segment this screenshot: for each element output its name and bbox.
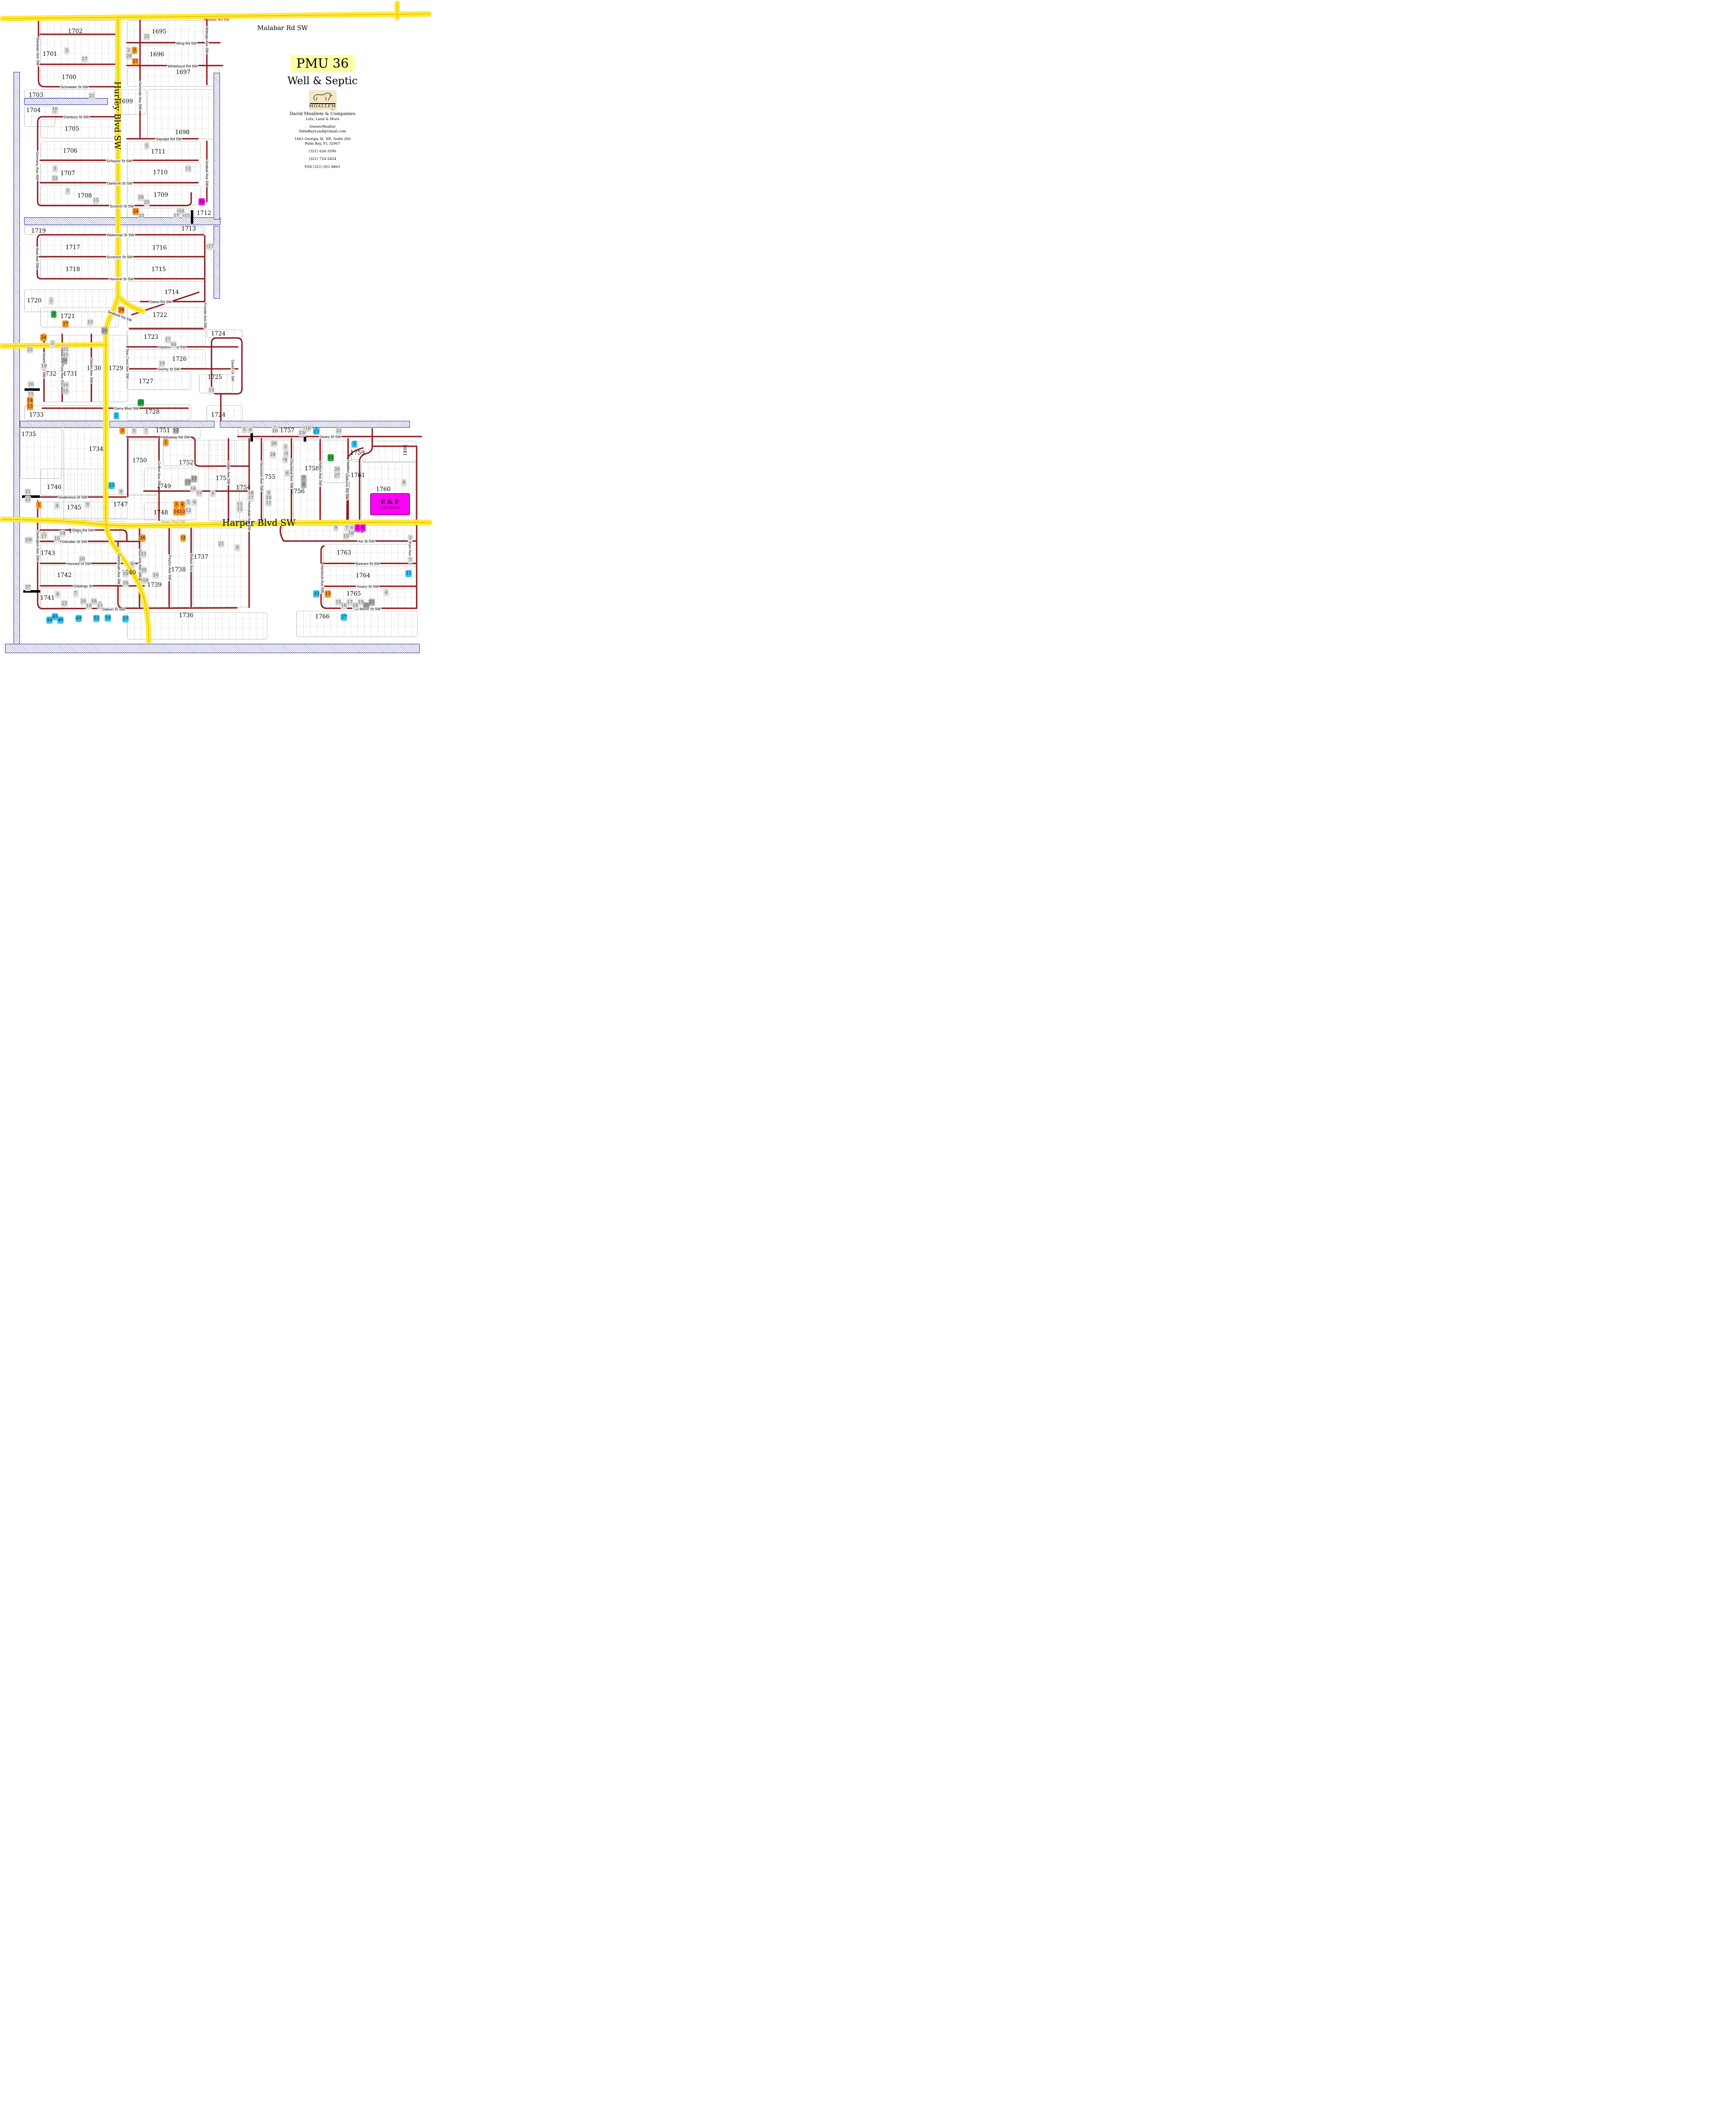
lot-marker-number: 17 (97, 604, 102, 609)
lot-marker: 23 (140, 551, 146, 558)
parcel-ef-acreage: 3.6 Acres (380, 505, 399, 510)
lot-marker-number: 21 (63, 353, 68, 357)
lot-marker: 12 (173, 427, 179, 434)
address-line2: Palm Bay, FL 32907 (271, 141, 374, 146)
lot-marker: 52 (93, 615, 99, 622)
block-number: 1704 (26, 107, 41, 114)
lot-marker-number: 25 (144, 201, 149, 205)
lot-marker-number: 17 (82, 57, 87, 62)
lot-marker: 15 (62, 388, 69, 395)
lot-marker-number: 14 (27, 398, 33, 403)
street-label: Giblin Ave SW (227, 461, 231, 485)
lot-marker: 6 (248, 426, 253, 434)
street-label: Halton Ave SW (319, 461, 322, 487)
block-number: 1730 (87, 365, 101, 372)
lot-marker-number: 23 (138, 401, 143, 405)
lot-marker: P17 (41, 532, 47, 539)
lot-marker: 20 (79, 556, 85, 563)
block-number: 1695 (152, 28, 166, 35)
lot-marker: 3 (408, 535, 413, 542)
lot-marker-number: 5 (353, 442, 356, 447)
lot-marker-number: 20 (79, 557, 85, 562)
block-number: 1711 (151, 148, 165, 155)
block-number: 1712 (197, 210, 211, 217)
lot-marker: 11 (405, 570, 412, 577)
lot-marker-number: 14 (60, 531, 65, 536)
lot-marker: 13 (27, 403, 33, 410)
lot-marker: 54 (104, 615, 111, 622)
lot-marker: 21 (335, 428, 342, 435)
lot-marker-number: 8 (131, 562, 134, 567)
block-number: 1764 (356, 572, 370, 579)
lot-marker-number: 2 (284, 445, 287, 450)
lot-marker: 21 (368, 599, 375, 606)
street-label: Haryestor Ave SW (260, 461, 264, 492)
block-number: 1766 (315, 613, 330, 620)
lot-marker: 1 (36, 502, 42, 509)
lot-marker: 7 (143, 428, 149, 435)
street-label: Gertrude Ave SW (138, 81, 142, 110)
street-label: Scranton St SW (106, 255, 133, 259)
lot-marker-number: 25 (144, 35, 149, 39)
lot-marker: 26 (101, 327, 107, 335)
phone-2: (321) 724-2424 (271, 157, 374, 161)
street-label: Waterway St SW (106, 233, 135, 237)
lot-marker-number: 9 (120, 490, 123, 494)
lot-marker-number: 15 (209, 388, 214, 393)
block-number: 1718 (66, 266, 80, 273)
block-number: 1748 (154, 509, 168, 516)
major-road-label: Malabar Rd SW (257, 24, 308, 32)
lot-marker: 16 (198, 198, 205, 206)
block-number: 1717 (66, 244, 80, 251)
lot-marker: 23 (61, 600, 67, 607)
lot-marker-number: 5 (356, 526, 359, 530)
block-number: 1706 (63, 148, 77, 154)
lot-marker-number: 21 (336, 429, 341, 434)
lot-marker-number: 20 (141, 568, 146, 573)
block-number: 1703 (29, 92, 43, 99)
lot-marker-number: 28 (126, 54, 132, 59)
lot-marker-number: 29 (25, 538, 30, 543)
lot-marker-number: 2 (51, 341, 54, 346)
lot-marker: 13 (324, 591, 331, 598)
lot-marker-number: 10 (153, 573, 158, 578)
street-label: Gideon St SW (101, 608, 125, 612)
lot-marker: 6 (285, 470, 290, 477)
lot-marker-number: 18 (143, 579, 148, 583)
lot-marker: 4 (55, 591, 60, 598)
plat-p-flag: P (31, 539, 33, 541)
block-number: 1725 (208, 374, 222, 381)
fax: FAX (321) 951-8861 (271, 165, 374, 169)
lot-marker-number: 16 (190, 487, 196, 492)
lot-marker-number: 19 (41, 364, 47, 369)
email: PalmBayLand@Gmail.com (271, 129, 374, 133)
lot-marker-number: 8 (302, 483, 305, 487)
lot-marker-number: 3 (175, 503, 178, 507)
lot-marker: 9 (85, 501, 91, 508)
lot-marker-number: 49 (76, 616, 81, 621)
title-block: PMU 36 Well & Septic M DAVID MOALLEM INC… (271, 55, 374, 169)
company-logo: M DAVID MOALLEM INC (309, 90, 337, 110)
plat-map-page: Malabar Rd SWWing Rd SWWhitehurst Rd SWS… (0, 0, 434, 662)
lot-marker-number: 17 (173, 214, 179, 219)
lot-marker-number: 23 (140, 552, 146, 557)
block-number: 1708 (77, 192, 92, 199)
lot-marker: 4 (360, 525, 366, 532)
block-number: 1750 (132, 457, 147, 464)
street-label: Gibbs Rd SW (71, 529, 94, 533)
major-road-label: 1641 (402, 444, 408, 456)
lot-marker-number: 54 (105, 616, 110, 621)
lot-marker: 33 (313, 591, 319, 598)
lot-marker: 6 (192, 499, 198, 506)
lot-marker-number: 6 (249, 428, 252, 432)
lot-marker-number: 46 (58, 618, 63, 623)
lot-marker-number: 12 (185, 508, 191, 513)
lot-marker: 25 (143, 199, 150, 206)
lot-marker: 21 (218, 541, 224, 548)
plat-p-flag: P (54, 111, 56, 114)
block-number: 1734 (89, 446, 103, 453)
street-label: Sea Crest Ave SW (126, 348, 129, 379)
street-label: Bartram St SW (355, 562, 380, 566)
block-number: 1745 (67, 504, 81, 511)
block-number: 1715 (151, 266, 166, 273)
lot-marker-number: 6 (286, 471, 289, 476)
lot-marker-number: 22 (27, 348, 33, 352)
street-label: Gibralter St SW (61, 540, 88, 544)
lot-marker: 9 (235, 544, 240, 552)
block-number: 1722 (153, 312, 167, 319)
lot-marker: P17 (96, 602, 103, 609)
lot-marker: 10P (52, 107, 58, 114)
lot-marker: 15 (343, 533, 349, 540)
street-label: Darlington Ave SW (36, 530, 40, 562)
block-number: 1739 (147, 582, 162, 588)
lot-marker: P3 (181, 535, 186, 542)
block-number: 1713 (181, 225, 196, 232)
lot-marker-number: 16 (170, 343, 176, 347)
lot-marker: 26 (271, 440, 277, 448)
lot-marker-number: 20 (61, 359, 67, 363)
lot-marker-number: 10 (185, 480, 190, 485)
lion-icon (311, 91, 334, 102)
lot-marker: 23 (108, 482, 115, 489)
block-number: 1728 (145, 409, 159, 415)
lot-marker: P17 (313, 428, 319, 435)
lot-marker: 12 (185, 507, 191, 514)
block-number: 1735 (22, 431, 36, 438)
lot-marker: 21 (88, 93, 95, 100)
lot-marker-number: 4 (56, 504, 59, 508)
lot-marker-number: 12 (237, 507, 242, 512)
lot-marker-number: 4 (285, 458, 288, 462)
street-label: Ais St SW (357, 540, 375, 544)
street-label: Havelock Ave SW (321, 563, 324, 593)
lot-marker-number: 5 (133, 429, 136, 434)
block-number: 1756 (290, 488, 305, 495)
lot-marker-number: 11 (328, 456, 333, 460)
block-number: 1716 (152, 244, 167, 251)
lot-marker: 46 (57, 617, 63, 624)
street-label: Schneider St SW (60, 85, 89, 89)
lot-marker-number: 22 (25, 497, 30, 502)
lot-marker-number: 3 (286, 452, 288, 456)
lot-marker: 2 (50, 340, 55, 347)
lot-marker-number: 3 (121, 428, 124, 433)
block-number: 1724 (211, 330, 225, 337)
lot-marker: 49 (75, 615, 82, 622)
block-number: 1757 (280, 427, 294, 434)
street-label: Seabull Ave SW (205, 160, 209, 187)
lot-marker-number: 12 (173, 428, 179, 433)
block-number: 1747 (113, 501, 128, 508)
lot-marker-number: 16 (123, 581, 128, 586)
block-number: 1741 (40, 595, 55, 602)
block-number: 1738 (171, 566, 186, 573)
lot-marker-number: 26 (138, 195, 143, 200)
lot-marker: 2 (283, 444, 288, 451)
lot-marker-number: 13 (27, 404, 33, 409)
lot-marker-number: 4 (385, 591, 388, 595)
logo-name: MOALLEM (309, 104, 336, 109)
lot-marker-number: 16 (63, 383, 68, 388)
lot-marker-number: 26 (271, 442, 277, 446)
lot-marker: 23 (138, 213, 144, 220)
lot-marker-number: 15 (196, 491, 202, 496)
lot-marker-number: 13 (179, 510, 185, 514)
lot-marker-number: 1 (165, 440, 168, 445)
lot-marker-number: 3 (409, 536, 412, 541)
lot-marker-number: 18 (91, 599, 96, 604)
block-number: 1701 (43, 51, 57, 58)
block-number: 1696 (150, 51, 164, 58)
lot-marker: 9 (210, 490, 216, 497)
lot-marker-number: 15 (184, 214, 190, 219)
lot-marker: 4 (384, 589, 389, 596)
lot-marker-number: 17 (208, 244, 214, 249)
lot-marker: 7 (73, 590, 79, 597)
barrier-bar (191, 210, 193, 224)
lot-marker: 20 (140, 567, 147, 574)
lot-marker-number: 7 (346, 526, 349, 530)
lot-marker-number: 9 (335, 526, 338, 530)
lot-marker-number: 4 (181, 503, 184, 507)
lot-marker-number: 14 (173, 510, 179, 514)
lot-marker-number: 17 (41, 535, 47, 539)
lot-marker: P4 (283, 456, 288, 464)
lot-marker: P17 (206, 243, 214, 250)
block-number: 1697 (176, 69, 190, 76)
lot-marker: 11 (265, 500, 272, 507)
street-label: Danbury St SW (63, 115, 90, 119)
lot-marker: 17 (81, 56, 88, 63)
lot-marker: 19 (159, 360, 165, 368)
major-road-label: Hurley Blvd SW (113, 81, 123, 150)
lot-marker: 5 (65, 188, 71, 195)
lot-marker: 4 (180, 501, 185, 508)
lot-marker-number: 5 (146, 144, 148, 148)
lot-marker-number: 4 (56, 592, 59, 597)
lot-marker-number: 24 (41, 335, 46, 340)
street-label: Scottish St SW (109, 205, 135, 209)
lot-marker-number: 3 (183, 536, 186, 541)
lot-marker: 21 (25, 489, 31, 496)
block-number: 1733 (29, 412, 44, 418)
lot-marker: 5 (355, 525, 360, 532)
lot-marker: 8 (130, 561, 135, 568)
lot-marker-number: 21 (25, 490, 30, 494)
street-label: Malabar Rd SW (203, 18, 230, 22)
lot-marker-number: 5 (187, 500, 190, 505)
lot-marker-number: 9 (86, 503, 89, 507)
block-number: 1760 (376, 486, 390, 493)
lot-marker-number: 7 (302, 476, 305, 481)
lot-marker: 27 (341, 614, 347, 621)
lot-marker-number: 10 (272, 429, 277, 434)
block-number: 1709 (154, 192, 168, 198)
street-label: Griffen Ave SW (157, 461, 161, 486)
lot-marker: 16 (170, 341, 176, 349)
lot-marker: 9 (333, 525, 339, 532)
block-number: 1698 (175, 129, 190, 136)
lot-marker-number: 16 (199, 200, 204, 204)
lot-marker: 22 (52, 175, 58, 182)
company-name: David Moallem & Companies (271, 111, 374, 117)
street-label: Wing Rd SW (176, 42, 198, 46)
street-label: Seabreeze St SW (58, 496, 88, 500)
lot-marker: 28 (118, 307, 124, 314)
street-label: Bavarian Ave SW (36, 37, 40, 66)
lot-marker-number: 57 (123, 617, 128, 621)
lot-marker-number: 17 (313, 430, 319, 435)
street-label: Schayler St SW (106, 159, 132, 163)
lot-marker: 10 (184, 479, 191, 486)
lot-marker: P7 (49, 298, 54, 305)
lot-marker: 10 (152, 572, 159, 579)
lot-marker-number: 23 (138, 214, 144, 219)
phone-1: (321) 626-3590 (271, 149, 374, 153)
street-label: Darien Ave SW (90, 357, 93, 383)
block-number: 1724 (211, 412, 225, 418)
lot-marker-number: 27 (334, 473, 340, 478)
lot-marker: 57 (122, 615, 129, 623)
logo-inc: INC (331, 108, 335, 110)
lot-marker-number: 7 (409, 558, 412, 563)
lot-marker-number: 21 (89, 94, 94, 99)
lot-marker-number: 15 (299, 431, 304, 436)
block-number: 1714 (165, 289, 179, 296)
block-number: 1707 (60, 170, 75, 177)
lot-marker: 17 (62, 321, 69, 328)
lot-marker: 11 (327, 454, 334, 461)
lot-marker-number: 6 (193, 500, 196, 505)
parcel-ef: E & F3.6 Acres (370, 493, 410, 515)
lot-marker: 27 (132, 58, 138, 66)
lot-marker: 16 (27, 381, 34, 388)
lot-marker-number: 27 (132, 60, 138, 64)
lot-marker-number: 19 (159, 362, 165, 366)
lot-marker-number: 27 (341, 615, 346, 620)
lot-marker: 14 (59, 530, 66, 537)
lot-marker: 15P (298, 430, 306, 437)
street-label: Daton Rd SW (149, 300, 173, 304)
street-label: Giddings St (73, 585, 93, 588)
block-number: 1752 (179, 459, 193, 466)
lot-marker: 23 (137, 399, 144, 407)
lot-marker: 28 (126, 53, 132, 60)
lot-marker: 15 (196, 490, 202, 497)
lot-marker-number: 22 (52, 176, 58, 181)
block-number: 1763 (337, 549, 351, 556)
street-label: Daysland Ave SW (290, 459, 294, 489)
block-number: 1710 (153, 169, 168, 176)
lot-marker-number: 23 (109, 483, 114, 488)
lot-marker: 7 (408, 557, 413, 564)
lot-marker-number: 52 (93, 616, 99, 621)
street-label: Watoga Ave SW (205, 26, 209, 54)
lot-marker: 5 (144, 143, 150, 150)
lot-marker: 16 (122, 580, 129, 587)
major-road-label: Harper Blvd SW (222, 518, 296, 528)
lot-marker: 15 (208, 387, 214, 394)
map-subtitle: Well & Septic (271, 75, 374, 87)
lot-marker-number: 7 (145, 429, 148, 434)
lot-marker: 20 (61, 357, 67, 365)
lot-marker-number: 5 (66, 189, 69, 194)
lot-marker: 9 (118, 489, 124, 496)
lot-marker: 4 (55, 503, 60, 510)
block-number: 1751 (156, 427, 170, 434)
lot-marker: P18 (140, 577, 148, 585)
lot-marker-number: 15 (343, 534, 349, 539)
street-label: Harvard St SW (66, 562, 91, 566)
lot-marker-number: 15 (63, 389, 68, 394)
lot-marker-number: 9 (212, 492, 214, 496)
lot-marker-number: 5 (66, 49, 69, 53)
street-label: Gerrity St SW (157, 368, 181, 371)
street-label: Germany Ave SW (36, 151, 39, 181)
block-number: 1720 (27, 297, 41, 304)
lot-marker-number: 23 (61, 602, 67, 606)
block-number: 1746 (47, 484, 61, 491)
street-label: Gibbons Rd SW (345, 473, 349, 500)
lot-marker: 37 (25, 584, 31, 591)
block-number: 1719 (31, 228, 46, 234)
lot-marker-number: 26 (140, 536, 145, 541)
lot-marker: 5 (186, 499, 191, 506)
lot-marker: 3 (174, 501, 179, 508)
lot-marker-number: 28 (334, 467, 340, 472)
lot-marker-number: 13 (87, 320, 93, 325)
lot-marker-number: 17 (248, 496, 253, 500)
parcel-ef-name: E & F (381, 499, 399, 505)
lot-marker: 22 (27, 346, 33, 354)
lot-marker: 17 (173, 213, 179, 220)
lot-marker-number: 26 (102, 329, 107, 333)
lot-marker: 12 (185, 165, 191, 173)
lot-marker-number: 3 (52, 312, 55, 317)
owner-role: Owner/Realtor (271, 124, 374, 129)
street-label: Harwick St SW (109, 277, 134, 281)
street-label: Rebus Ave (190, 553, 193, 572)
lot-marker-number: 15 (93, 198, 99, 203)
lot-marker-number: 37 (25, 585, 30, 590)
lot-marker: 3 (120, 427, 125, 434)
lot-marker: 29P (25, 537, 33, 544)
